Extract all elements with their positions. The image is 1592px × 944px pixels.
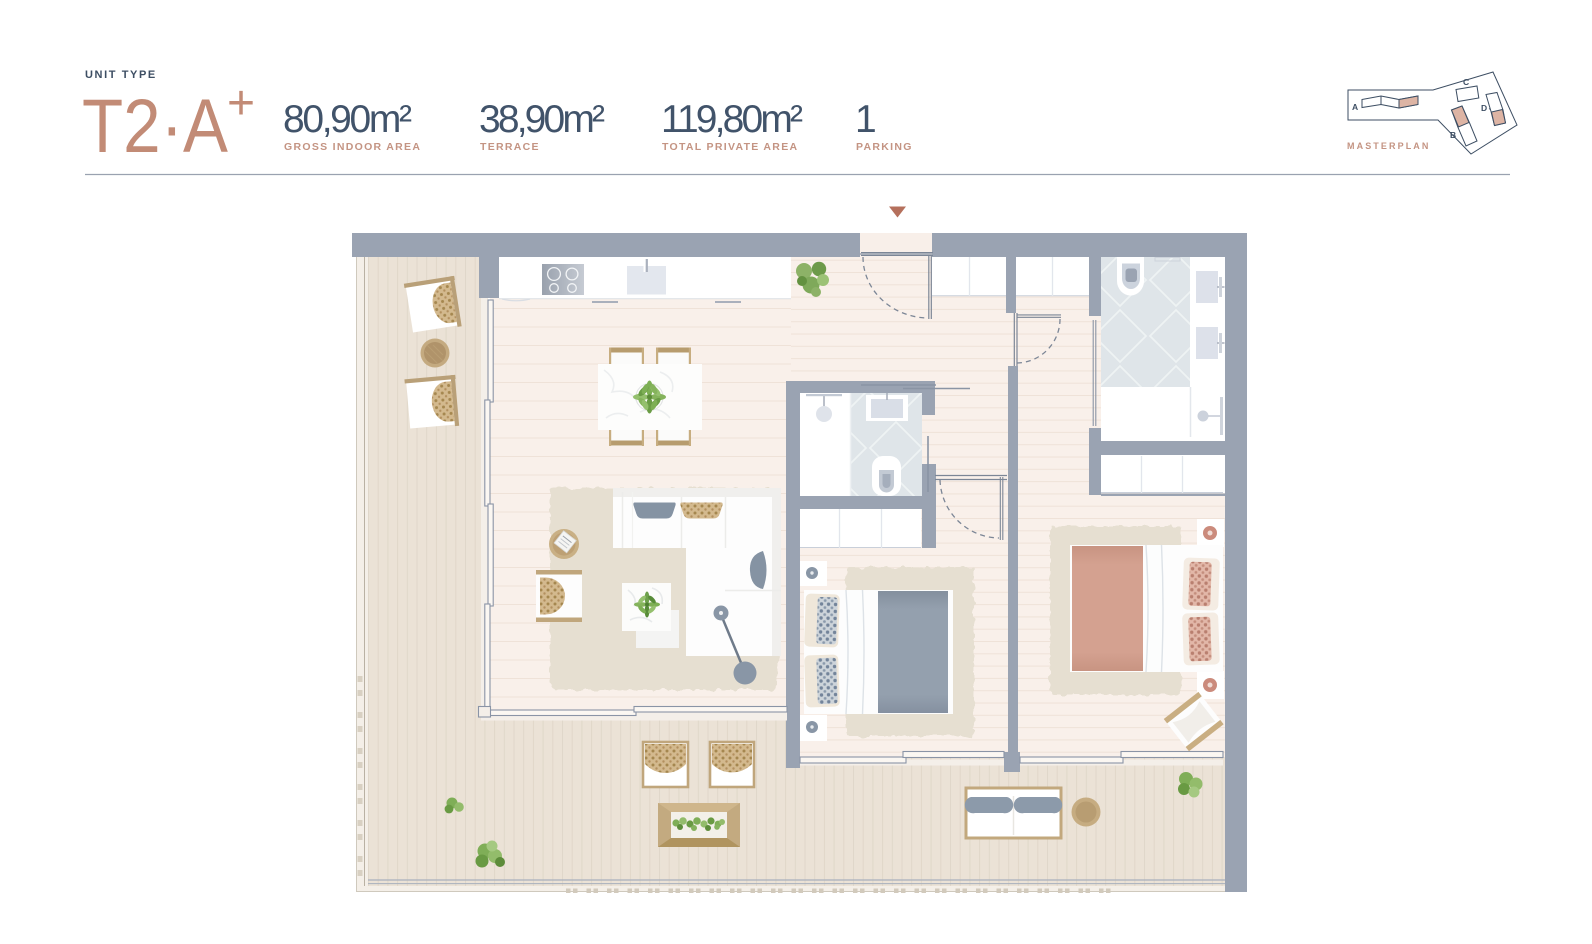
svg-text:TOTAL PRIVATE AREA: TOTAL PRIVATE AREA [662,141,798,153]
svg-text:TERRACE: TERRACE [480,141,540,153]
svg-text:C: C [1463,77,1469,87]
svg-text:PARKING: PARKING [856,141,913,153]
svg-text:A: A [1352,102,1358,112]
svg-text:GROSS INDOOR AREA: GROSS INDOOR AREA [284,141,421,153]
svg-text:+: + [227,77,255,130]
svg-text:D: D [1481,103,1487,113]
svg-text:T2·A: T2·A [82,84,228,169]
svg-text:1: 1 [855,98,877,141]
svg-text:38,90m²: 38,90m² [479,98,605,141]
svg-text:80,90m²: 80,90m² [283,98,412,141]
svg-text:MASTERPLAN: MASTERPLAN [1347,141,1431,151]
svg-text:B: B [1450,130,1456,140]
svg-text:119,80m²: 119,80m² [661,98,803,141]
svg-text:UNIT TYPE: UNIT TYPE [85,69,157,81]
